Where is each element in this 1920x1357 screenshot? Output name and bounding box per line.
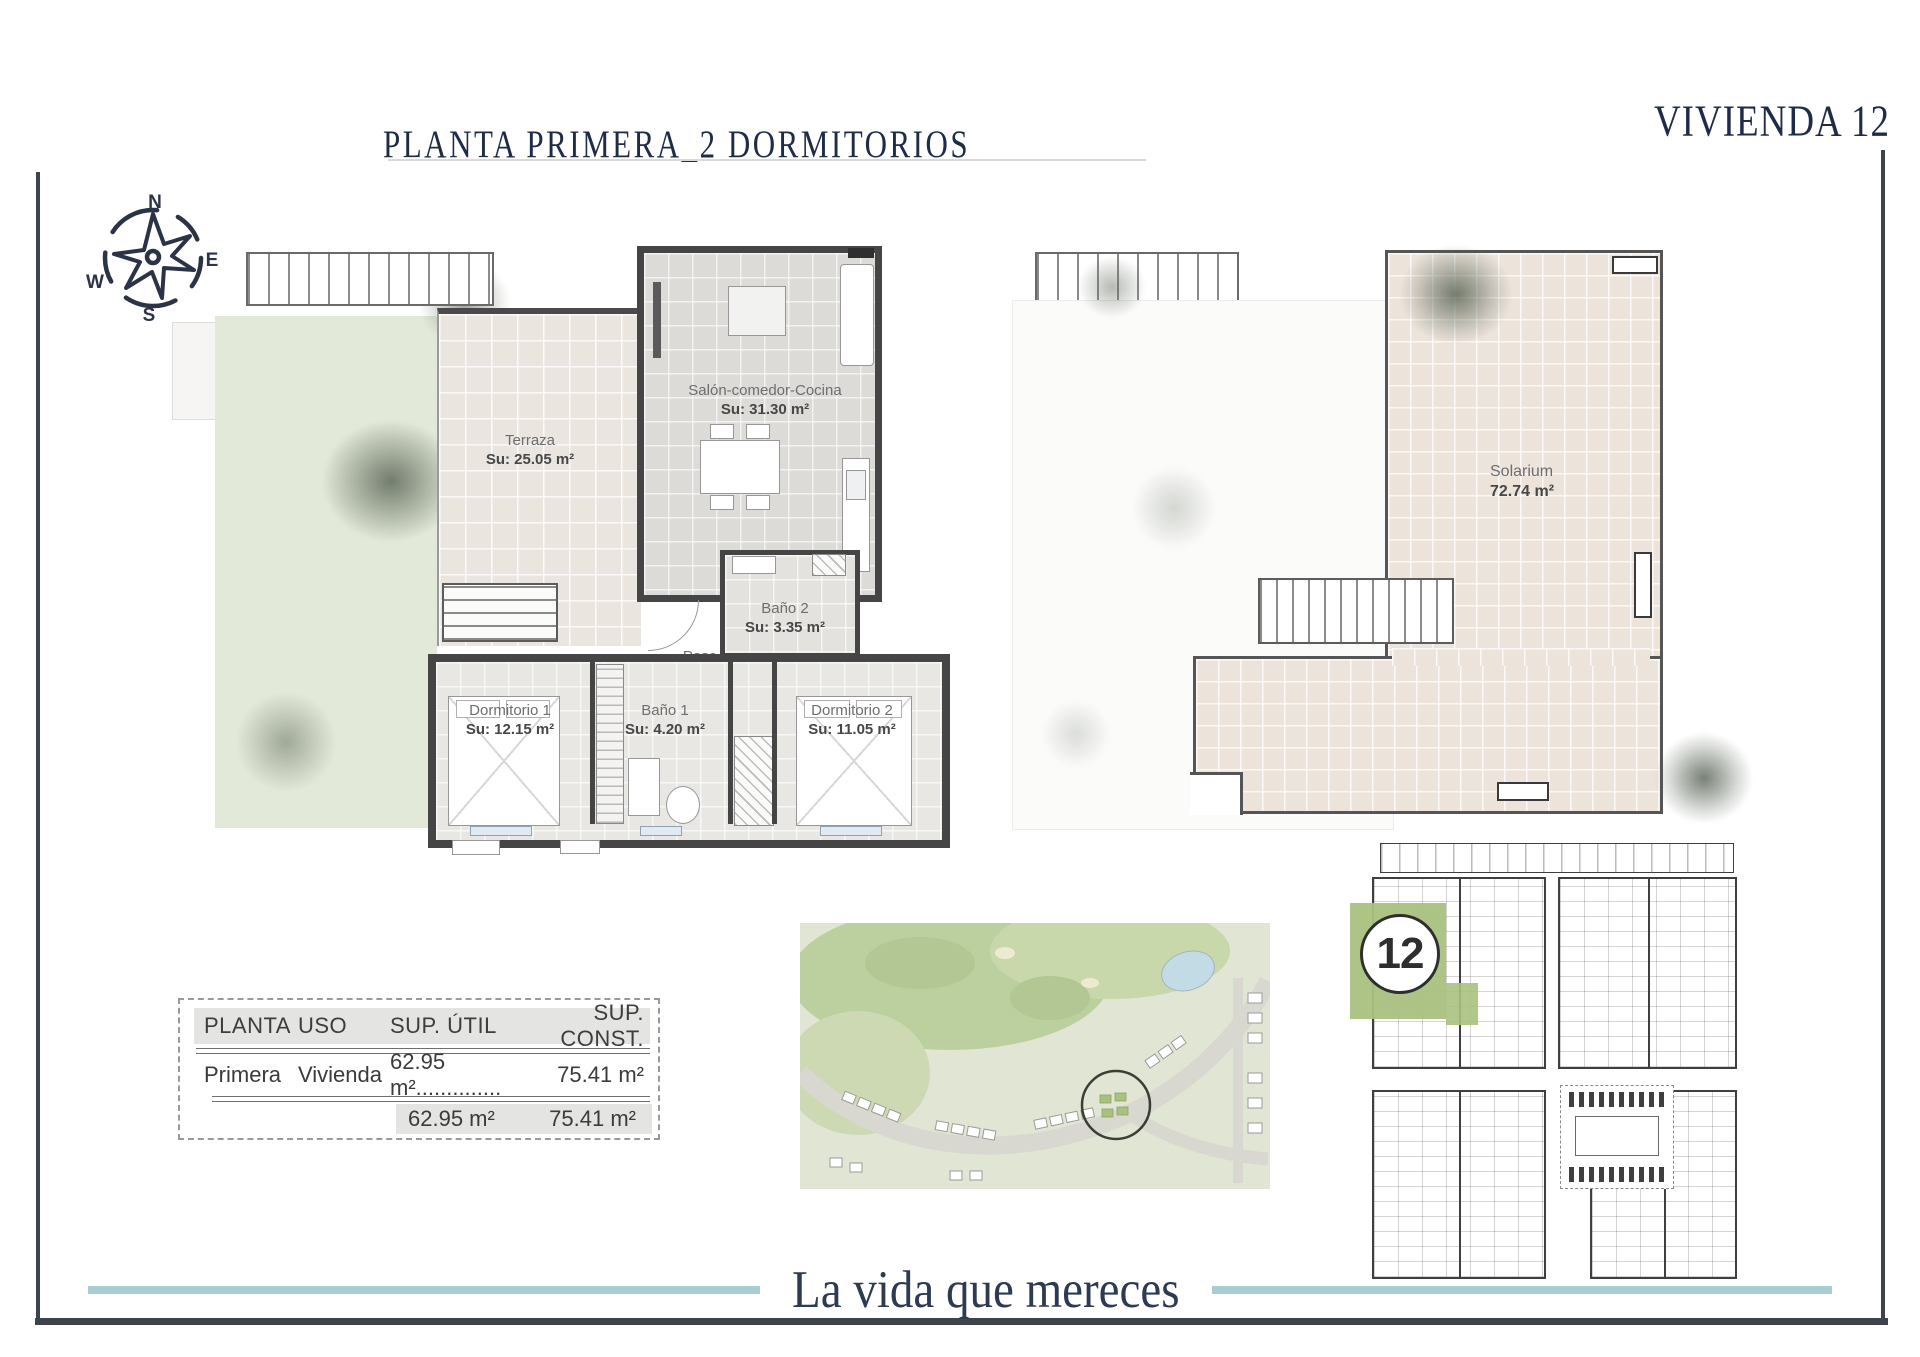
solarium-seam-patch (1392, 648, 1650, 666)
room-label-solarium: Solarium 72.74 m² (1490, 462, 1640, 502)
dining-table (700, 440, 780, 494)
bathroom2-sink (732, 556, 776, 574)
solarium-lower (1193, 656, 1663, 814)
shower-bath1 (734, 736, 774, 826)
ac-unit-solarium (1497, 782, 1549, 801)
room-label-bano2: Baño 2 Su: 3.35 m² (705, 600, 865, 638)
compass-e-label: E (206, 250, 219, 271)
compass-s-label: S (143, 305, 156, 322)
compass-icon: N E S W (86, 192, 220, 322)
pergola-tree-icon (1066, 246, 1158, 328)
kp-unit12-highlight-2 (1446, 983, 1478, 1025)
sofa (840, 264, 874, 366)
tagline-right-line (1212, 1286, 1832, 1294)
solarium-stairs (1258, 578, 1454, 644)
coffee-table (728, 286, 786, 336)
kp-block-top-right (1558, 877, 1737, 1069)
brochure-page: PLANTA PRIMERA_2 DORMITORIOS VIVIENDA 12… (0, 0, 1920, 1357)
col-header-sup-const: SUP. CONST. (548, 1000, 650, 1052)
tagline-left-line (88, 1286, 760, 1294)
solarium-bench (1634, 552, 1652, 618)
wardrobe-1 (596, 664, 624, 824)
room-label-dormitorio2: Dormitorio 2 Su: 11.05 m² (772, 702, 932, 740)
col-header-planta: PLANTA (194, 1013, 298, 1039)
dining-chair-4 (746, 495, 770, 510)
bath1-wc (666, 786, 700, 824)
kitchen-sink (846, 470, 866, 500)
ac-unit-2 (560, 840, 600, 854)
bathroom2-washer (812, 554, 846, 576)
total-sup-util: 62.95 m² (408, 1106, 495, 1132)
cell-uso: Vivienda (298, 1062, 390, 1088)
kp-courtyard (1560, 1085, 1674, 1189)
ghost-bush-icon (1030, 688, 1122, 780)
pergola-left (246, 252, 494, 306)
areas-table-row: Primera Vivienda 62.95 m².............. … (194, 1058, 650, 1092)
site-map (800, 923, 1270, 1189)
tv-unit (653, 282, 661, 358)
cell-planta: Primera (194, 1062, 298, 1088)
solarium-notch (1190, 772, 1243, 815)
garden-bush-icon (236, 692, 336, 792)
solarium-tree-bottom-icon (1655, 732, 1753, 824)
dining-chair-2 (746, 424, 770, 439)
ghost-tree-icon (1118, 452, 1230, 564)
tagline-text: La vida que mereces (792, 1260, 1180, 1320)
bath1-vanity (628, 758, 660, 816)
key-plan (1350, 843, 1755, 1275)
solarium-vent (1612, 256, 1658, 274)
areas-table-totals: 62.95 m² 75.41 m² (396, 1104, 652, 1134)
unit-title: VIVIENDA 12 (1540, 96, 1890, 148)
ac-unit-1 (452, 840, 500, 855)
window-bath1 (640, 826, 682, 836)
terrace-stairs (442, 583, 558, 642)
tagline-row: La vida que mereces (88, 1258, 1832, 1322)
cell-sup-const: 75.41 m² (548, 1062, 650, 1088)
kp-courtyard-comb-top (1569, 1092, 1665, 1107)
col-header-uso: USO (298, 1013, 390, 1039)
dining-chair-1 (710, 424, 734, 439)
kp-top-row (1380, 843, 1734, 873)
hall-door-arc (648, 600, 699, 651)
room-label-salon: Salón-comedor-Cocina Su: 31.30 m² (660, 382, 870, 420)
col-header-sup-util: SUP. ÚTIL (390, 1013, 548, 1039)
kp-block-bottom-left (1372, 1090, 1546, 1279)
cell-sup-util: 62.95 m².............. (390, 1049, 548, 1101)
dining-chair-3 (710, 495, 734, 510)
frame-left-line (36, 172, 40, 1320)
window-dorm2 (820, 826, 882, 836)
frame-right-line (1881, 150, 1885, 1320)
total-sup-const: 75.41 m² (549, 1106, 636, 1132)
meter-box (848, 248, 874, 258)
wing-divider-3 (772, 662, 777, 824)
wing-divider-1 (590, 662, 595, 824)
solarium-tree-top-icon (1400, 244, 1512, 344)
room-label-bano1: Baño 1 Su: 4.20 m² (600, 702, 730, 740)
kp-courtyard-comb-bottom (1569, 1167, 1665, 1182)
areas-table: PLANTA USO SUP. ÚTIL SUP. CONST. Primera… (178, 998, 660, 1140)
unit-12-badge: 12 (1360, 914, 1440, 994)
compass-n-label: N (148, 192, 162, 213)
room-label-dormitorio1: Dormitorio 1 Su: 12.15 m² (430, 702, 590, 740)
kp-courtyard-inner (1575, 1116, 1659, 1156)
wing-divider-2 (728, 662, 733, 824)
title-underline (388, 159, 1146, 161)
table-rule-2 (212, 1096, 650, 1102)
compass-w-label: W (86, 272, 104, 293)
areas-table-header: PLANTA USO SUP. ÚTIL SUP. CONST. (194, 1008, 650, 1044)
room-label-terraza: Terraza Su: 25.05 m² (445, 432, 615, 470)
window-dorm1 (470, 826, 532, 836)
